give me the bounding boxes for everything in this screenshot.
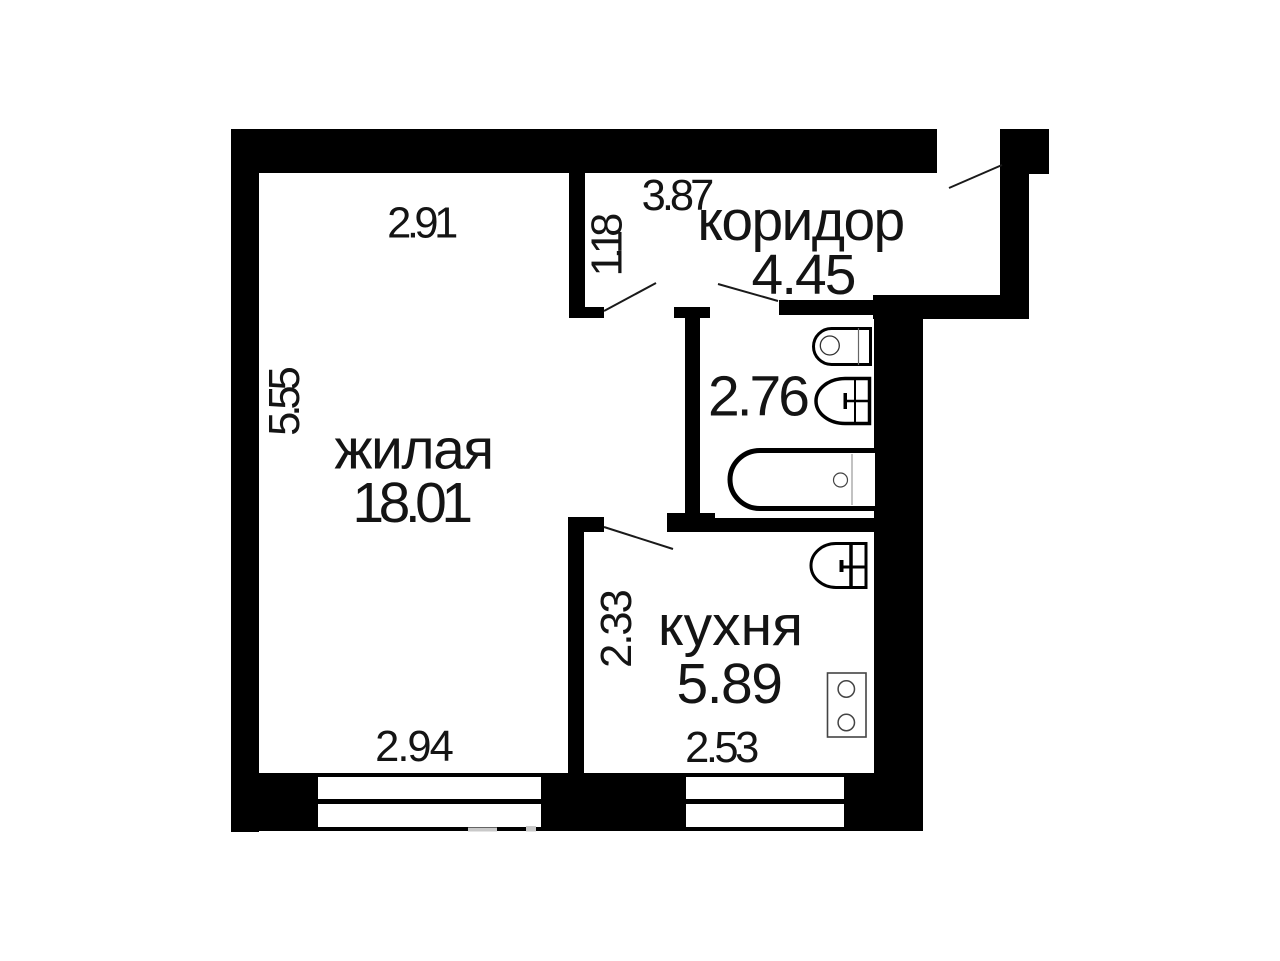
- svg-text:3.87: 3.87: [642, 172, 712, 220]
- svg-text:1.18: 1.18: [584, 214, 632, 276]
- svg-text:2.91: 2.91: [387, 200, 457, 248]
- svg-text:18.01: 18.01: [352, 471, 470, 535]
- svg-text:2.94: 2.94: [375, 723, 452, 771]
- svg-text:кухня: кухня: [658, 594, 803, 658]
- svg-text:2.53: 2.53: [685, 724, 758, 772]
- svg-text:2.76: 2.76: [708, 365, 808, 429]
- svg-text:2.33: 2.33: [593, 590, 641, 667]
- svg-text:5.89: 5.89: [677, 652, 782, 716]
- svg-text:4.45: 4.45: [752, 243, 855, 307]
- svg-text:5.55: 5.55: [261, 367, 309, 435]
